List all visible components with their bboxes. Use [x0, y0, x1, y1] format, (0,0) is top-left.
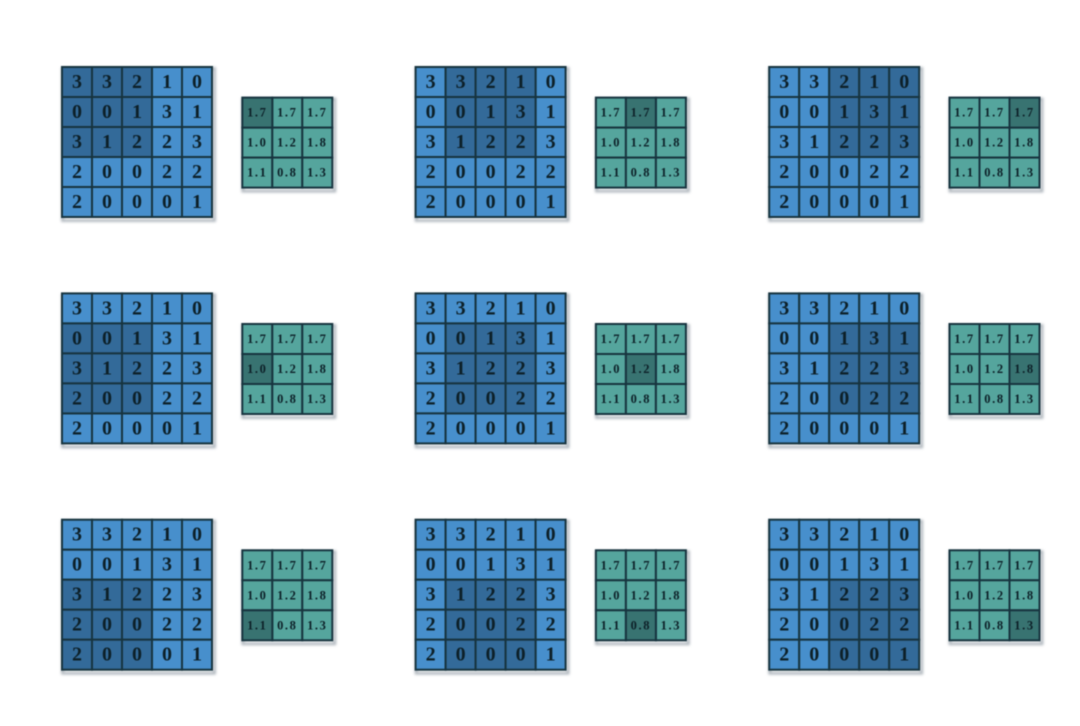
- svg-text:3: 3: [546, 584, 556, 606]
- svg-text:1.8: 1.8: [1014, 136, 1034, 150]
- svg-text:3: 3: [162, 101, 172, 123]
- svg-text:2: 2: [162, 161, 172, 183]
- svg-text:0: 0: [72, 101, 82, 123]
- svg-text:1.8: 1.8: [1014, 362, 1034, 376]
- svg-text:1.7: 1.7: [601, 106, 621, 120]
- svg-text:2: 2: [486, 297, 496, 319]
- svg-text:1.8: 1.8: [307, 136, 327, 150]
- svg-text:1.0: 1.0: [601, 588, 621, 602]
- svg-text:1.7: 1.7: [661, 106, 681, 120]
- svg-text:1.7: 1.7: [954, 106, 974, 120]
- svg-text:0: 0: [516, 417, 526, 439]
- svg-text:2: 2: [869, 131, 879, 153]
- svg-text:0.8: 0.8: [277, 392, 297, 406]
- svg-text:2: 2: [192, 614, 202, 636]
- svg-text:3: 3: [192, 357, 202, 379]
- svg-text:0: 0: [162, 644, 172, 666]
- svg-text:1.0: 1.0: [247, 588, 267, 602]
- svg-text:2: 2: [869, 161, 879, 183]
- svg-text:0: 0: [456, 101, 466, 123]
- svg-text:2: 2: [839, 524, 849, 546]
- svg-text:1.2: 1.2: [984, 362, 1004, 376]
- svg-text:1.2: 1.2: [631, 136, 651, 150]
- svg-text:0: 0: [456, 191, 466, 213]
- svg-text:1.3: 1.3: [307, 166, 327, 180]
- svg-text:1.7: 1.7: [247, 332, 267, 346]
- svg-text:1: 1: [102, 357, 112, 379]
- svg-text:1: 1: [486, 327, 496, 349]
- svg-text:3: 3: [899, 131, 909, 153]
- svg-text:2: 2: [132, 131, 142, 153]
- svg-text:2: 2: [72, 387, 82, 409]
- svg-text:2: 2: [869, 357, 879, 379]
- svg-text:0: 0: [456, 554, 466, 576]
- svg-text:1: 1: [869, 524, 879, 546]
- svg-text:3: 3: [809, 71, 819, 93]
- svg-text:1.0: 1.0: [954, 362, 974, 376]
- svg-text:3: 3: [192, 584, 202, 606]
- svg-text:2: 2: [779, 161, 789, 183]
- svg-text:0: 0: [102, 101, 112, 123]
- svg-text:1.3: 1.3: [1014, 618, 1034, 632]
- svg-text:3: 3: [426, 357, 436, 379]
- svg-text:1.1: 1.1: [247, 166, 267, 180]
- svg-text:0: 0: [899, 71, 909, 93]
- svg-text:1: 1: [192, 644, 202, 666]
- svg-text:0: 0: [456, 161, 466, 183]
- svg-text:0.8: 0.8: [631, 166, 651, 180]
- svg-text:0: 0: [132, 614, 142, 636]
- svg-text:1.2: 1.2: [984, 588, 1004, 602]
- svg-text:3: 3: [779, 131, 789, 153]
- svg-text:1: 1: [546, 191, 556, 213]
- svg-text:2: 2: [516, 131, 526, 153]
- svg-text:0: 0: [809, 191, 819, 213]
- svg-text:2: 2: [162, 131, 172, 153]
- svg-text:0: 0: [102, 614, 112, 636]
- svg-text:1.3: 1.3: [661, 166, 681, 180]
- svg-text:3: 3: [72, 524, 82, 546]
- svg-text:1.7: 1.7: [247, 106, 267, 120]
- svg-text:2: 2: [132, 524, 142, 546]
- svg-text:2: 2: [162, 387, 172, 409]
- svg-text:0.8: 0.8: [984, 618, 1004, 632]
- svg-text:1: 1: [102, 584, 112, 606]
- svg-text:1.0: 1.0: [247, 362, 267, 376]
- svg-text:1.0: 1.0: [601, 362, 621, 376]
- svg-text:1.2: 1.2: [631, 362, 651, 376]
- svg-text:0: 0: [102, 161, 112, 183]
- svg-text:3: 3: [72, 357, 82, 379]
- svg-text:2: 2: [72, 191, 82, 213]
- svg-text:0: 0: [546, 524, 556, 546]
- svg-text:1.0: 1.0: [601, 136, 621, 150]
- svg-text:1: 1: [162, 297, 172, 319]
- svg-text:1: 1: [809, 584, 819, 606]
- svg-text:2: 2: [839, 131, 849, 153]
- svg-text:2: 2: [839, 584, 849, 606]
- svg-text:1: 1: [132, 101, 142, 123]
- svg-text:0: 0: [486, 191, 496, 213]
- svg-text:0: 0: [546, 71, 556, 93]
- svg-text:1.8: 1.8: [307, 362, 327, 376]
- svg-text:2: 2: [426, 644, 436, 666]
- svg-text:1: 1: [516, 524, 526, 546]
- svg-text:0: 0: [779, 327, 789, 349]
- svg-text:2: 2: [779, 417, 789, 439]
- svg-text:0: 0: [809, 614, 819, 636]
- svg-text:1: 1: [486, 101, 496, 123]
- svg-text:0: 0: [102, 387, 112, 409]
- svg-text:0: 0: [486, 614, 496, 636]
- svg-text:2: 2: [132, 71, 142, 93]
- svg-text:2: 2: [869, 584, 879, 606]
- svg-text:2: 2: [869, 614, 879, 636]
- svg-text:1: 1: [456, 131, 466, 153]
- svg-text:2: 2: [899, 387, 909, 409]
- svg-text:0: 0: [809, 554, 819, 576]
- svg-text:2: 2: [426, 387, 436, 409]
- svg-text:2: 2: [546, 161, 556, 183]
- svg-text:2: 2: [779, 191, 789, 213]
- svg-text:1: 1: [192, 191, 202, 213]
- svg-text:2: 2: [426, 614, 436, 636]
- svg-text:0: 0: [516, 644, 526, 666]
- svg-text:1.2: 1.2: [277, 362, 297, 376]
- svg-text:1.2: 1.2: [631, 588, 651, 602]
- svg-text:0: 0: [839, 417, 849, 439]
- svg-text:0: 0: [809, 327, 819, 349]
- svg-text:3: 3: [426, 524, 436, 546]
- svg-text:0: 0: [839, 191, 849, 213]
- svg-text:0: 0: [899, 524, 909, 546]
- svg-text:2: 2: [516, 357, 526, 379]
- svg-text:0.8: 0.8: [984, 166, 1004, 180]
- svg-text:2: 2: [516, 614, 526, 636]
- svg-text:1.7: 1.7: [631, 558, 651, 572]
- svg-text:2: 2: [869, 387, 879, 409]
- svg-text:1: 1: [809, 357, 819, 379]
- svg-text:2: 2: [426, 191, 436, 213]
- svg-text:0: 0: [456, 417, 466, 439]
- svg-text:0: 0: [426, 327, 436, 349]
- svg-text:1.8: 1.8: [661, 588, 681, 602]
- svg-text:0: 0: [192, 524, 202, 546]
- svg-text:3: 3: [516, 554, 526, 576]
- svg-text:1.3: 1.3: [1014, 166, 1034, 180]
- svg-text:1: 1: [162, 71, 172, 93]
- svg-text:0: 0: [839, 614, 849, 636]
- svg-text:0: 0: [102, 417, 112, 439]
- svg-text:1: 1: [132, 327, 142, 349]
- svg-text:1.1: 1.1: [954, 618, 974, 632]
- svg-text:1.7: 1.7: [984, 106, 1004, 120]
- svg-text:3: 3: [869, 101, 879, 123]
- svg-text:3: 3: [546, 131, 556, 153]
- svg-text:0: 0: [132, 644, 142, 666]
- svg-text:0: 0: [132, 191, 142, 213]
- svg-text:3: 3: [72, 131, 82, 153]
- svg-text:3: 3: [102, 71, 112, 93]
- svg-text:0: 0: [102, 554, 112, 576]
- svg-text:1.1: 1.1: [954, 392, 974, 406]
- svg-text:1: 1: [456, 357, 466, 379]
- svg-text:1: 1: [132, 554, 142, 576]
- svg-text:1: 1: [899, 417, 909, 439]
- svg-text:3: 3: [162, 327, 172, 349]
- svg-text:0: 0: [899, 297, 909, 319]
- svg-text:0: 0: [486, 417, 496, 439]
- svg-text:2: 2: [486, 524, 496, 546]
- svg-text:2: 2: [486, 131, 496, 153]
- svg-text:1: 1: [516, 297, 526, 319]
- svg-text:1.0: 1.0: [954, 136, 974, 150]
- svg-text:3: 3: [779, 584, 789, 606]
- svg-text:3: 3: [869, 327, 879, 349]
- svg-text:2: 2: [132, 297, 142, 319]
- svg-text:0: 0: [72, 554, 82, 576]
- svg-text:2: 2: [162, 614, 172, 636]
- svg-text:3: 3: [426, 71, 436, 93]
- svg-text:0: 0: [426, 554, 436, 576]
- svg-text:0: 0: [869, 417, 879, 439]
- svg-text:3: 3: [516, 327, 526, 349]
- svg-text:1: 1: [546, 101, 556, 123]
- svg-text:0: 0: [546, 297, 556, 319]
- svg-text:0: 0: [102, 191, 112, 213]
- svg-text:0: 0: [486, 644, 496, 666]
- svg-text:1: 1: [192, 417, 202, 439]
- svg-text:0: 0: [162, 417, 172, 439]
- svg-text:0: 0: [839, 161, 849, 183]
- svg-text:1.7: 1.7: [1014, 558, 1034, 572]
- svg-text:1.7: 1.7: [1014, 106, 1034, 120]
- svg-text:1.0: 1.0: [247, 136, 267, 150]
- svg-text:1.3: 1.3: [307, 392, 327, 406]
- svg-text:1: 1: [839, 327, 849, 349]
- svg-text:3: 3: [516, 101, 526, 123]
- svg-text:1.7: 1.7: [247, 558, 267, 572]
- svg-text:0: 0: [132, 161, 142, 183]
- svg-text:2: 2: [839, 71, 849, 93]
- svg-text:1.7: 1.7: [1014, 332, 1034, 346]
- svg-text:1.7: 1.7: [984, 558, 1004, 572]
- svg-text:1: 1: [546, 327, 556, 349]
- svg-text:1: 1: [899, 327, 909, 349]
- svg-text:2: 2: [486, 584, 496, 606]
- svg-text:1.8: 1.8: [661, 362, 681, 376]
- svg-text:2: 2: [426, 417, 436, 439]
- svg-text:1: 1: [102, 131, 112, 153]
- svg-text:1.7: 1.7: [277, 558, 297, 572]
- svg-text:1: 1: [162, 524, 172, 546]
- svg-text:2: 2: [192, 387, 202, 409]
- svg-text:0: 0: [102, 644, 112, 666]
- svg-text:1.3: 1.3: [661, 618, 681, 632]
- svg-text:0.8: 0.8: [277, 618, 297, 632]
- svg-text:1.8: 1.8: [1014, 588, 1034, 602]
- svg-text:0: 0: [192, 297, 202, 319]
- svg-text:1.2: 1.2: [984, 136, 1004, 150]
- svg-text:2: 2: [899, 614, 909, 636]
- svg-text:0: 0: [839, 644, 849, 666]
- svg-text:2: 2: [132, 584, 142, 606]
- svg-text:0: 0: [779, 101, 789, 123]
- svg-text:1.7: 1.7: [954, 558, 974, 572]
- svg-text:0: 0: [516, 191, 526, 213]
- svg-text:1.3: 1.3: [1014, 392, 1034, 406]
- svg-text:0: 0: [72, 327, 82, 349]
- svg-text:1: 1: [869, 71, 879, 93]
- svg-text:2: 2: [899, 161, 909, 183]
- svg-text:1.1: 1.1: [601, 618, 621, 632]
- svg-text:1: 1: [192, 327, 202, 349]
- svg-text:0: 0: [192, 71, 202, 93]
- svg-text:1: 1: [839, 554, 849, 576]
- svg-text:2: 2: [516, 161, 526, 183]
- svg-text:1: 1: [809, 131, 819, 153]
- svg-text:0: 0: [102, 327, 112, 349]
- svg-text:3: 3: [809, 524, 819, 546]
- svg-text:2: 2: [132, 357, 142, 379]
- svg-text:2: 2: [779, 614, 789, 636]
- svg-text:0: 0: [456, 387, 466, 409]
- svg-text:0: 0: [426, 101, 436, 123]
- svg-text:3: 3: [779, 297, 789, 319]
- svg-text:3: 3: [102, 524, 112, 546]
- svg-text:0: 0: [809, 644, 819, 666]
- svg-text:1.7: 1.7: [661, 332, 681, 346]
- svg-text:1: 1: [546, 417, 556, 439]
- svg-text:0: 0: [456, 327, 466, 349]
- svg-text:0: 0: [809, 387, 819, 409]
- svg-text:1.1: 1.1: [601, 166, 621, 180]
- svg-text:1.7: 1.7: [601, 332, 621, 346]
- svg-text:0: 0: [456, 614, 466, 636]
- svg-text:1: 1: [899, 554, 909, 576]
- svg-text:1.1: 1.1: [601, 392, 621, 406]
- svg-text:3: 3: [162, 554, 172, 576]
- svg-text:1: 1: [486, 554, 496, 576]
- svg-text:1.3: 1.3: [661, 392, 681, 406]
- svg-text:3: 3: [546, 357, 556, 379]
- svg-text:3: 3: [72, 584, 82, 606]
- svg-text:1.1: 1.1: [247, 618, 267, 632]
- svg-text:3: 3: [809, 297, 819, 319]
- svg-text:2: 2: [546, 614, 556, 636]
- svg-text:1: 1: [839, 101, 849, 123]
- svg-text:1.7: 1.7: [601, 558, 621, 572]
- svg-text:3: 3: [456, 524, 466, 546]
- svg-text:1: 1: [516, 71, 526, 93]
- svg-text:1.7: 1.7: [307, 558, 327, 572]
- svg-text:3: 3: [899, 584, 909, 606]
- svg-text:3: 3: [779, 524, 789, 546]
- svg-text:1.7: 1.7: [984, 332, 1004, 346]
- svg-text:0: 0: [869, 644, 879, 666]
- svg-text:0: 0: [486, 161, 496, 183]
- svg-text:2: 2: [839, 297, 849, 319]
- svg-text:1.7: 1.7: [277, 332, 297, 346]
- svg-text:3: 3: [192, 131, 202, 153]
- svg-text:0: 0: [162, 191, 172, 213]
- svg-text:3: 3: [72, 297, 82, 319]
- svg-text:1: 1: [456, 584, 466, 606]
- svg-text:1.0: 1.0: [954, 588, 974, 602]
- svg-text:1: 1: [192, 554, 202, 576]
- svg-text:1.7: 1.7: [631, 106, 651, 120]
- svg-text:0: 0: [869, 191, 879, 213]
- svg-text:1.7: 1.7: [307, 332, 327, 346]
- svg-text:3: 3: [72, 71, 82, 93]
- svg-text:1: 1: [899, 644, 909, 666]
- svg-text:1.3: 1.3: [307, 618, 327, 632]
- svg-text:0: 0: [809, 417, 819, 439]
- svg-text:2: 2: [779, 387, 789, 409]
- svg-text:0: 0: [456, 644, 466, 666]
- svg-text:2: 2: [516, 387, 526, 409]
- svg-text:1.7: 1.7: [631, 332, 651, 346]
- svg-text:1.7: 1.7: [954, 332, 974, 346]
- svg-text:1.7: 1.7: [277, 106, 297, 120]
- svg-text:1: 1: [546, 554, 556, 576]
- svg-text:0.8: 0.8: [984, 392, 1004, 406]
- svg-text:3: 3: [899, 357, 909, 379]
- svg-text:3: 3: [426, 584, 436, 606]
- svg-text:2: 2: [192, 161, 202, 183]
- svg-text:1: 1: [869, 297, 879, 319]
- svg-text:0: 0: [132, 387, 142, 409]
- svg-text:0: 0: [809, 101, 819, 123]
- svg-text:1: 1: [899, 191, 909, 213]
- svg-text:2: 2: [779, 644, 789, 666]
- svg-text:0: 0: [839, 387, 849, 409]
- svg-text:1.2: 1.2: [277, 588, 297, 602]
- svg-text:2: 2: [426, 161, 436, 183]
- svg-text:3: 3: [779, 357, 789, 379]
- svg-text:2: 2: [72, 161, 82, 183]
- svg-text:1.7: 1.7: [307, 106, 327, 120]
- svg-text:0.8: 0.8: [631, 618, 651, 632]
- svg-text:2: 2: [162, 357, 172, 379]
- svg-text:2: 2: [72, 614, 82, 636]
- svg-text:1.8: 1.8: [661, 136, 681, 150]
- svg-text:2: 2: [162, 584, 172, 606]
- svg-text:2: 2: [72, 644, 82, 666]
- svg-text:0: 0: [779, 554, 789, 576]
- svg-text:1.1: 1.1: [954, 166, 974, 180]
- svg-text:1: 1: [192, 101, 202, 123]
- svg-text:3: 3: [456, 297, 466, 319]
- svg-text:1: 1: [546, 644, 556, 666]
- svg-text:2: 2: [516, 584, 526, 606]
- svg-text:3: 3: [869, 554, 879, 576]
- svg-text:1: 1: [899, 101, 909, 123]
- svg-text:0: 0: [809, 161, 819, 183]
- svg-text:0.8: 0.8: [277, 166, 297, 180]
- svg-text:1.2: 1.2: [277, 136, 297, 150]
- svg-text:0.8: 0.8: [631, 392, 651, 406]
- svg-text:0: 0: [132, 417, 142, 439]
- svg-text:2: 2: [486, 357, 496, 379]
- svg-text:3: 3: [779, 71, 789, 93]
- svg-text:1.7: 1.7: [661, 558, 681, 572]
- svg-text:3: 3: [426, 131, 436, 153]
- svg-text:2: 2: [546, 387, 556, 409]
- svg-text:2: 2: [486, 71, 496, 93]
- svg-text:0: 0: [486, 387, 496, 409]
- svg-text:2: 2: [72, 417, 82, 439]
